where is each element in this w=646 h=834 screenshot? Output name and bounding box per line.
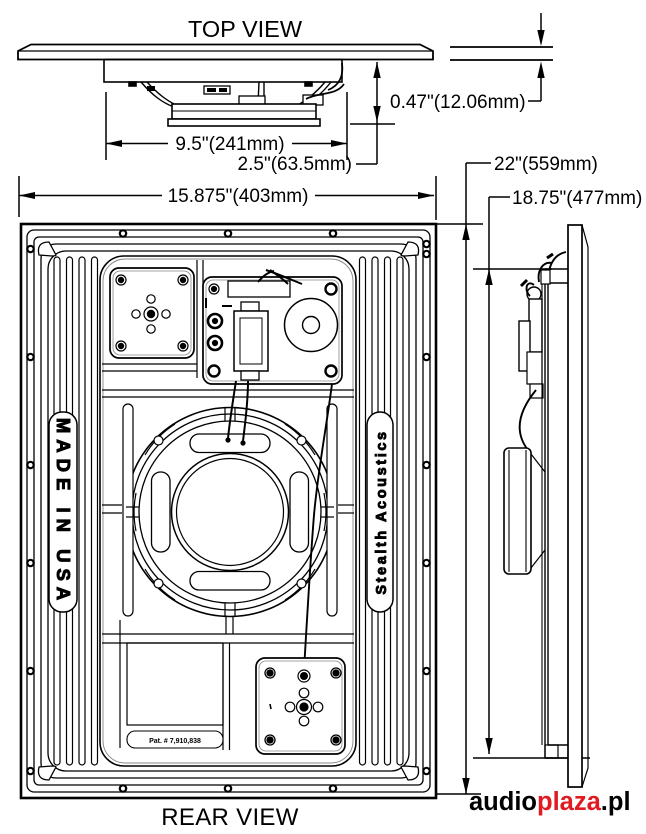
svg-text:audioplaza.pl: audioplaza.pl: [469, 788, 631, 816]
svg-text:Pat. # 7,910,838: Pat. # 7,910,838: [149, 738, 201, 745]
svg-text:15.875"(403mm): 15.875"(403mm): [168, 186, 309, 207]
svg-text:18.75"(477mm): 18.75"(477mm): [512, 188, 642, 209]
svg-text:22"(559mm): 22"(559mm): [494, 154, 598, 175]
svg-text:TOP VIEW: TOP VIEW: [188, 16, 303, 42]
svg-text:Stealth Acoustics: Stealth Acoustics: [374, 429, 390, 594]
svg-text:2.5"(63.5mm): 2.5"(63.5mm): [238, 154, 352, 175]
svg-text:MADE IN USA: MADE IN USA: [53, 418, 74, 606]
svg-text:9.5"(241mm): 9.5"(241mm): [175, 134, 284, 155]
svg-text:REAR VIEW: REAR VIEW: [161, 804, 298, 831]
svg-text:0.47"(12.06mm): 0.47"(12.06mm): [390, 92, 526, 113]
